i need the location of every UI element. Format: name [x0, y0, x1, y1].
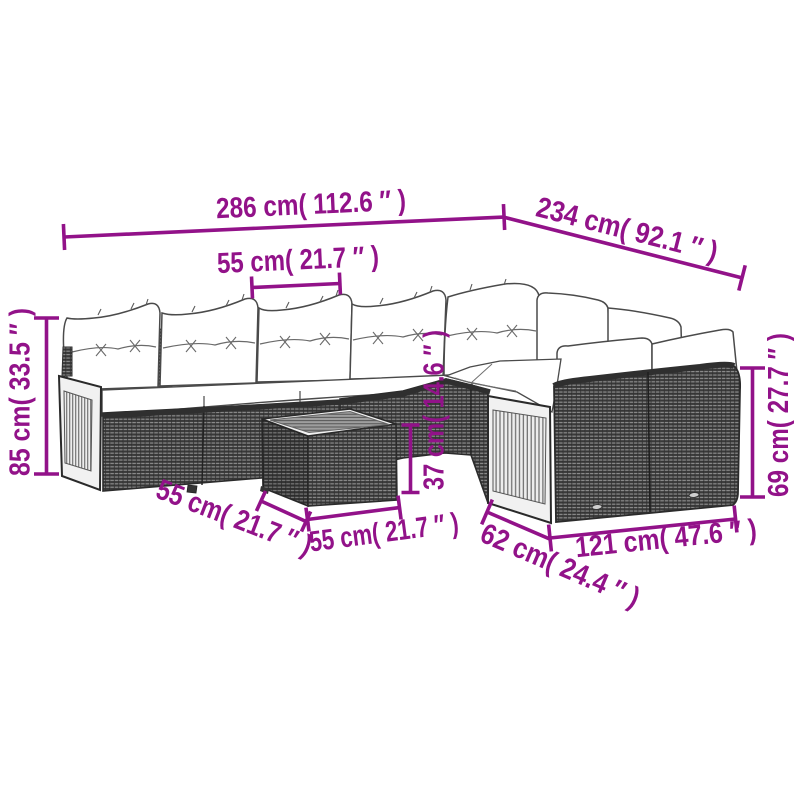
svg-text:69 cm( 27.7 ″ ): 69 cm( 27.7 ″ ): [763, 333, 795, 497]
svg-text:85 cm( 33.5 ″ ): 85 cm( 33.5 ″ ): [5, 308, 37, 476]
svg-text:37 cm( 14.6 ″ ): 37 cm( 14.6 ″ ): [419, 330, 451, 490]
